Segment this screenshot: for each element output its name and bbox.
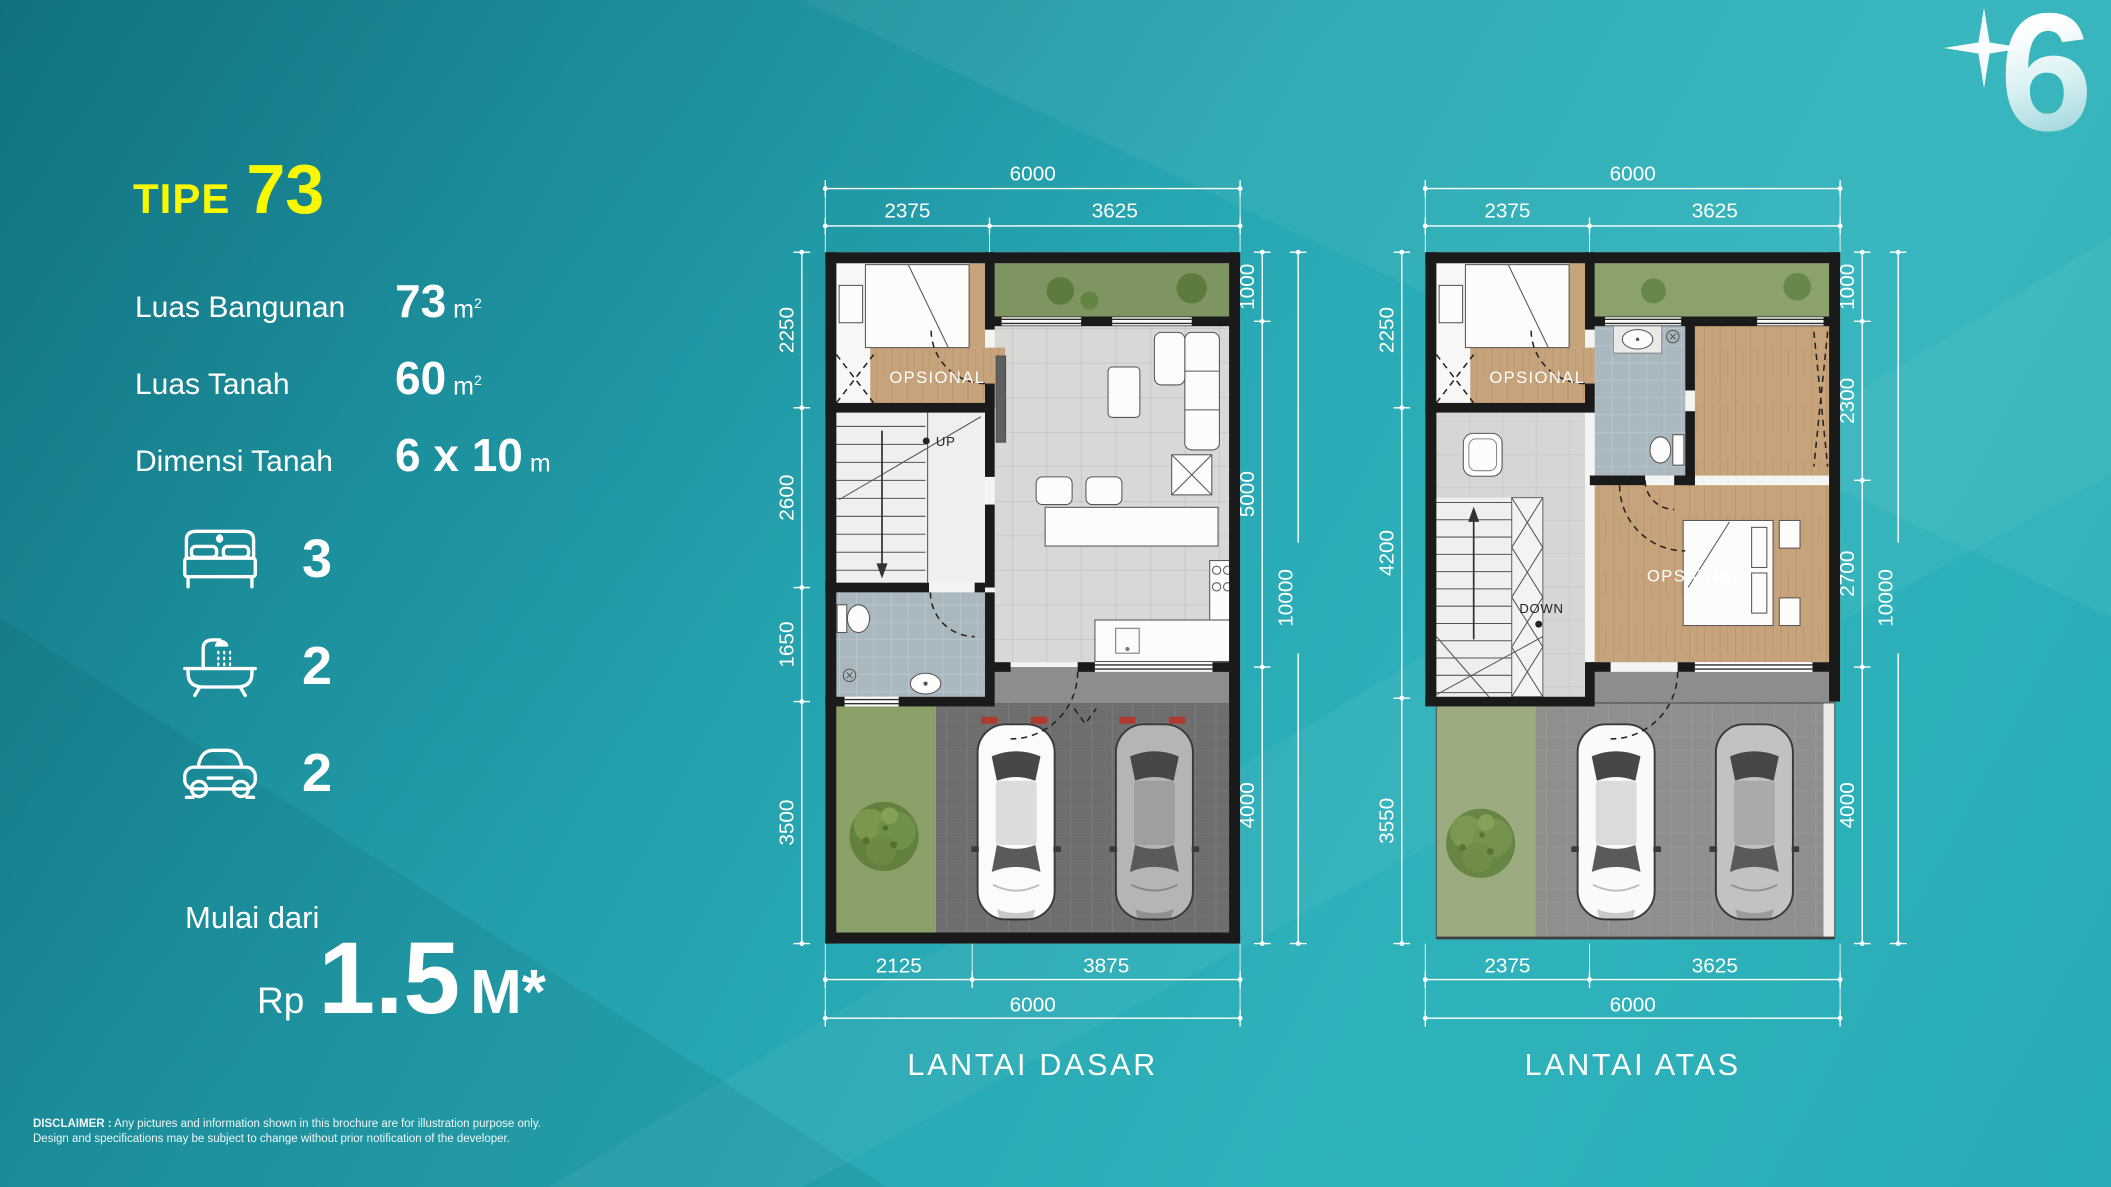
disclaimer-label: DISCLAIMER : [33,1118,112,1130]
carport-count: 2 [302,742,332,804]
dim-right-seg: 4000 [1836,782,1859,828]
dim-top-seg: 3625 [1692,200,1738,223]
stair-label-down: DOWN [1519,601,1563,616]
dim-top-seg: 2375 [1484,200,1530,223]
spec-row-luas-bangunan: Luas Bangunan 73 m2 [135,274,551,328]
car-icon [178,737,262,809]
type-number: 73 [246,160,324,220]
spec-value: 73 [395,274,446,328]
dim-bottom-total: 6000 [1010,993,1056,1016]
dim-bottom-total: 6000 [1610,993,1656,1016]
bathroom-count: 2 [302,635,332,697]
bath-icon [178,630,262,702]
price-suffix: M* [470,957,546,1028]
dim-bottom-seg: 3875 [1083,955,1129,978]
price-block: Mulai dari Rp 1.5 M* [185,900,546,1028]
dim-left-seg: 1650 [776,621,799,667]
room-label-opsional: OPSIONAL [1489,368,1585,387]
room-label-opsional: OPSIONAL [1647,566,1743,585]
spec-unit: m [530,449,551,478]
spec-unit: m2 [453,295,482,324]
stair-label-up: UP [936,434,956,449]
disclaimer: DISCLAIMER : Any pictures and informatio… [33,1117,541,1147]
room-label-opsional: OPSIONAL [889,368,985,387]
feature-bedrooms: 3 [178,522,332,596]
dim-bottom-seg: 3625 [1692,955,1738,978]
floor-plan-ground-svg: OPSIONAL UP 6000 2375 3625 2250 2600 165… [770,155,1330,1103]
dim-right-seg: 2700 [1836,551,1859,597]
sparkle-icon [1942,6,2026,90]
bed-icon [178,523,262,595]
dim-right-seg: 1000 [1236,264,1259,310]
dim-right-seg: 5000 [1236,471,1259,517]
type-title: TIPE 73 [133,160,324,223]
spec-label: Luas Tanah [135,368,387,402]
feature-carports: 2 [178,736,332,810]
floor-plan-upper-svg: OPSIONAL OPSIONAL DOWN 6000 2375 3625 22… [1370,155,1930,1103]
dim-right-seg: 2300 [1836,378,1859,424]
dim-top-seg: 3625 [1092,200,1138,223]
dim-left-seg: 3500 [776,800,799,846]
dim-right-total: 10000 [1275,569,1298,627]
type-label: TIPE [133,175,230,223]
dim-top-total: 6000 [1010,162,1056,185]
dim-left-seg: 4200 [1376,530,1399,576]
spec-value: 60 [395,351,446,405]
feature-bathrooms: 2 [178,629,332,703]
bedroom-count: 3 [302,528,332,590]
dim-right-total: 10000 [1875,569,1898,627]
dim-top-seg: 2375 [884,200,930,223]
plan-name-upper: LANTAI ATAS [1525,1048,1741,1082]
spec-row-dimensi-tanah: Dimensi Tanah 6 x 10 m [135,428,551,482]
plan-name-ground: LANTAI DASAR [907,1048,1158,1082]
spec-row-luas-tanah: Luas Tanah 60 m2 [135,351,551,405]
floor-plan-ground: OPSIONAL UP 6000 2375 3625 2250 2600 165… [770,155,1330,1103]
spec-list: Luas Bangunan 73 m2 Luas Tanah 60 m2 Dim… [135,274,551,505]
dim-left-seg: 2600 [776,475,799,521]
spec-unit: m2 [453,372,482,401]
dim-right-seg: 1000 [1836,264,1859,310]
dim-top-total: 6000 [1610,162,1656,185]
floor-plan-upper: OPSIONAL OPSIONAL DOWN 6000 2375 3625 22… [1370,155,1930,1103]
spec-label: Dimensi Tanah [135,445,387,479]
price-currency: Rp [257,980,304,1022]
dim-bottom-seg: 2125 [876,955,922,978]
feature-list: 3 2 [178,522,332,843]
dim-right-seg: 4000 [1236,782,1259,828]
disclaimer-line1: Any pictures and information shown in th… [114,1118,541,1130]
dim-left-seg: 3550 [1376,798,1399,844]
dim-bottom-seg: 2375 [1484,955,1530,978]
brochure-page: { "logo": { "number": "6" }, "panel": { … [0,0,2111,1187]
dim-left-seg: 2250 [776,307,799,353]
disclaimer-line2: Design and specifications may be subject… [33,1133,510,1145]
spec-label: Luas Bangunan [135,291,387,325]
price-amount: 1.5 [318,938,460,1020]
spec-value: 6 x 10 [395,428,523,482]
dim-left-seg: 2250 [1376,307,1399,353]
